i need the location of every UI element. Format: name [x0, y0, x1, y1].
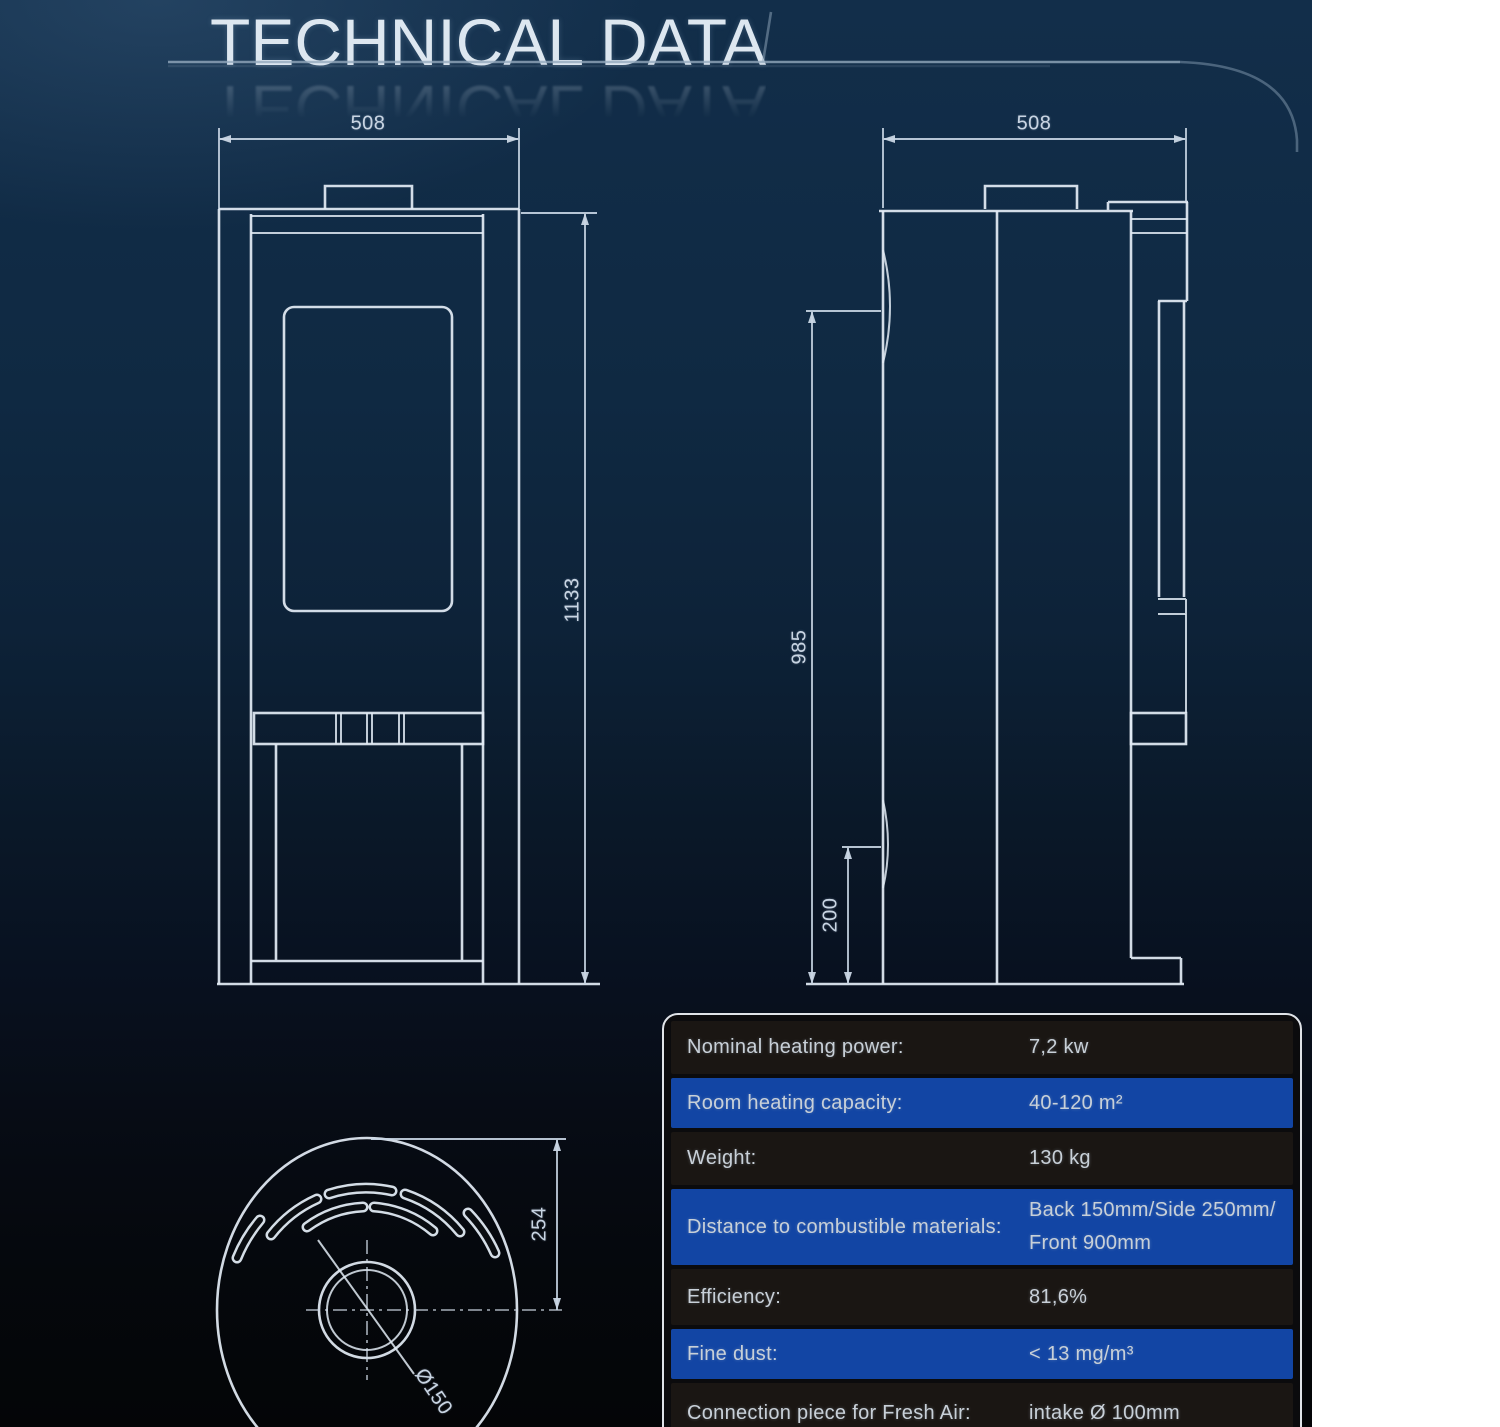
spec-row-nominal-heating-power: Nominal heating power: 7,2 kw: [671, 1021, 1293, 1074]
top-view-body-outline: [217, 1138, 517, 1427]
spec-label: Efficiency:: [671, 1286, 1029, 1309]
spec-value: Back 150mm/Side 250mm/Front 900mm: [1029, 1194, 1293, 1260]
datasheet-canvas: TECHNICAL DATA TECHNICAL DATA: [0, 0, 1312, 1427]
page: TECHNICAL DATA TECHNICAL DATA: [0, 0, 1500, 1427]
spec-row-weight: Weight: 130 kg: [671, 1132, 1293, 1185]
spec-row-efficiency: Efficiency: 81,6%: [671, 1269, 1293, 1325]
spec-label: Distance to combustible materials:: [671, 1216, 1029, 1239]
spec-value: < 13 mg/m³: [1029, 1343, 1293, 1366]
spec-table: Nominal heating power: 7,2 kw Room heati…: [662, 1013, 1302, 1427]
side-rear-bracket: [1131, 713, 1186, 744]
spec-value: 81,6%: [1029, 1286, 1293, 1309]
spec-row-distance-combustible: Distance to combustible materials: Back …: [671, 1189, 1293, 1265]
spec-label: Weight:: [671, 1147, 1029, 1170]
spec-label: Connection piece for Fresh Air:: [671, 1402, 1029, 1425]
top-offset-dim-label: 254: [529, 1207, 552, 1242]
spec-label: Room heating capacity:: [671, 1092, 1029, 1115]
spec-value: 7,2 kw: [1029, 1036, 1293, 1059]
header-underline-swoosh: [168, 12, 1297, 152]
spec-row-room-heating-capacity: Room heating capacity: 40-120 m²: [671, 1078, 1293, 1128]
top-view-drawing: [217, 1138, 566, 1427]
front-control-band: [254, 713, 483, 744]
front-door-window: [284, 307, 452, 611]
front-height-dim-label: 1133: [562, 577, 585, 622]
side-flue-collar: [985, 186, 1077, 209]
spec-value-line2: Front 900mm: [1029, 1227, 1293, 1260]
spec-row-fresh-air-connection: Connection piece for Fresh Air: intake Ø…: [671, 1383, 1293, 1427]
spec-label: Fine dust:: [671, 1343, 1029, 1366]
side-body-height-dim-label: 985: [789, 630, 812, 665]
top-view-diameter-line: [318, 1240, 414, 1374]
side-depth-dim-label: 508: [1017, 113, 1052, 136]
spec-label: Nominal heating power:: [671, 1036, 1029, 1059]
spec-row-fine-dust: Fine dust: < 13 mg/m³: [671, 1329, 1293, 1379]
front-view-drawing: [217, 128, 600, 984]
front-flue-collar: [325, 186, 412, 209]
side-clearance-dim-label: 200: [820, 898, 843, 933]
spec-value: 40-120 m²: [1029, 1092, 1293, 1115]
side-view-drawing: [806, 128, 1188, 984]
spec-value-line1: Back 150mm/Side 250mm/: [1029, 1194, 1293, 1227]
spec-value: intake Ø 100mm: [1029, 1402, 1293, 1425]
front-width-dim-label: 508: [351, 113, 386, 136]
page-right-margin: [1312, 0, 1500, 1427]
top-view-vent-slots: [237, 1188, 495, 1258]
spec-value: 130 kg: [1029, 1147, 1293, 1170]
